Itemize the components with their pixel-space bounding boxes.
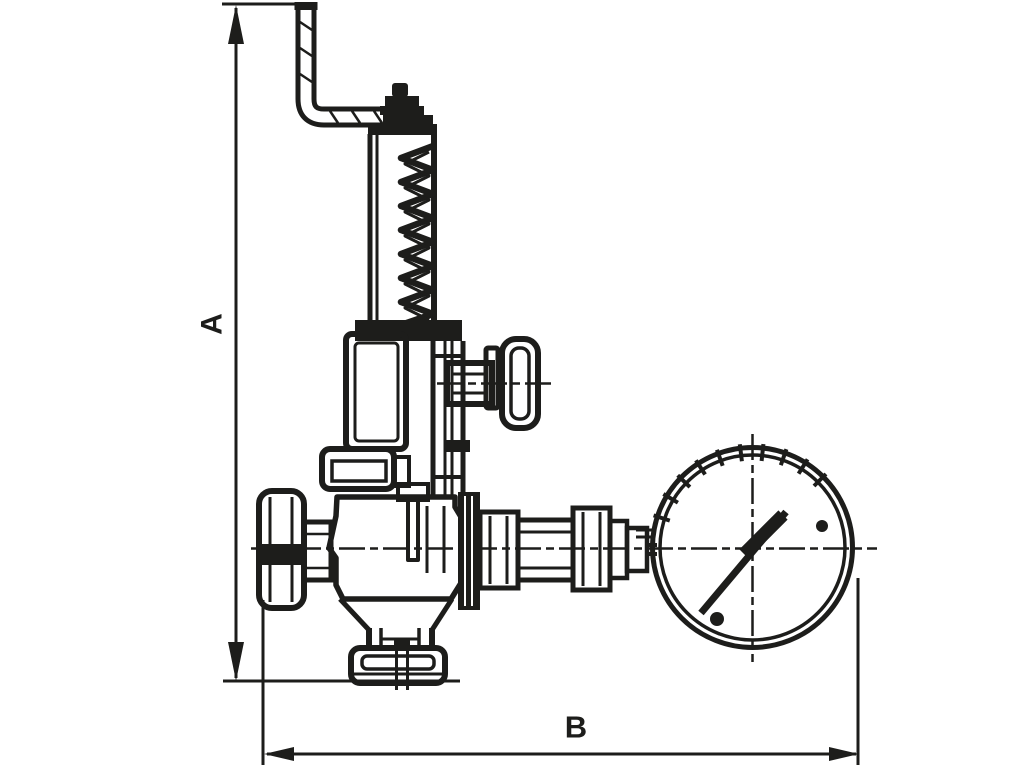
gauge-needle — [701, 512, 786, 613]
spring-coil — [401, 146, 433, 325]
dim-a-arrow-down — [228, 642, 244, 681]
union-nut — [322, 449, 428, 500]
dimension-a-label: A — [196, 313, 229, 335]
bottom-outlet — [340, 599, 452, 690]
dim-a-arrow-up — [228, 5, 244, 44]
technical-drawing-canvas: A B — [0, 0, 1024, 766]
safety-valve-drawing: A B — [0, 0, 1024, 766]
handwheel-stem — [304, 522, 331, 580]
dim-b-arrow-right — [829, 747, 859, 761]
handwheel-hub-band — [261, 544, 302, 565]
pressure-gauge — [636, 444, 853, 647]
lever-handle — [295, 2, 393, 123]
gauge-connection-pipe — [458, 492, 657, 610]
gauge-dial-dot-lower — [710, 612, 724, 626]
upper-chamber — [346, 334, 406, 449]
dimension-b-label: B — [565, 710, 587, 745]
dim-b-arrow-left — [264, 747, 294, 761]
body-end-plate — [458, 492, 480, 610]
gauge-dial-dot-upper — [816, 520, 828, 532]
column-band — [445, 440, 470, 452]
